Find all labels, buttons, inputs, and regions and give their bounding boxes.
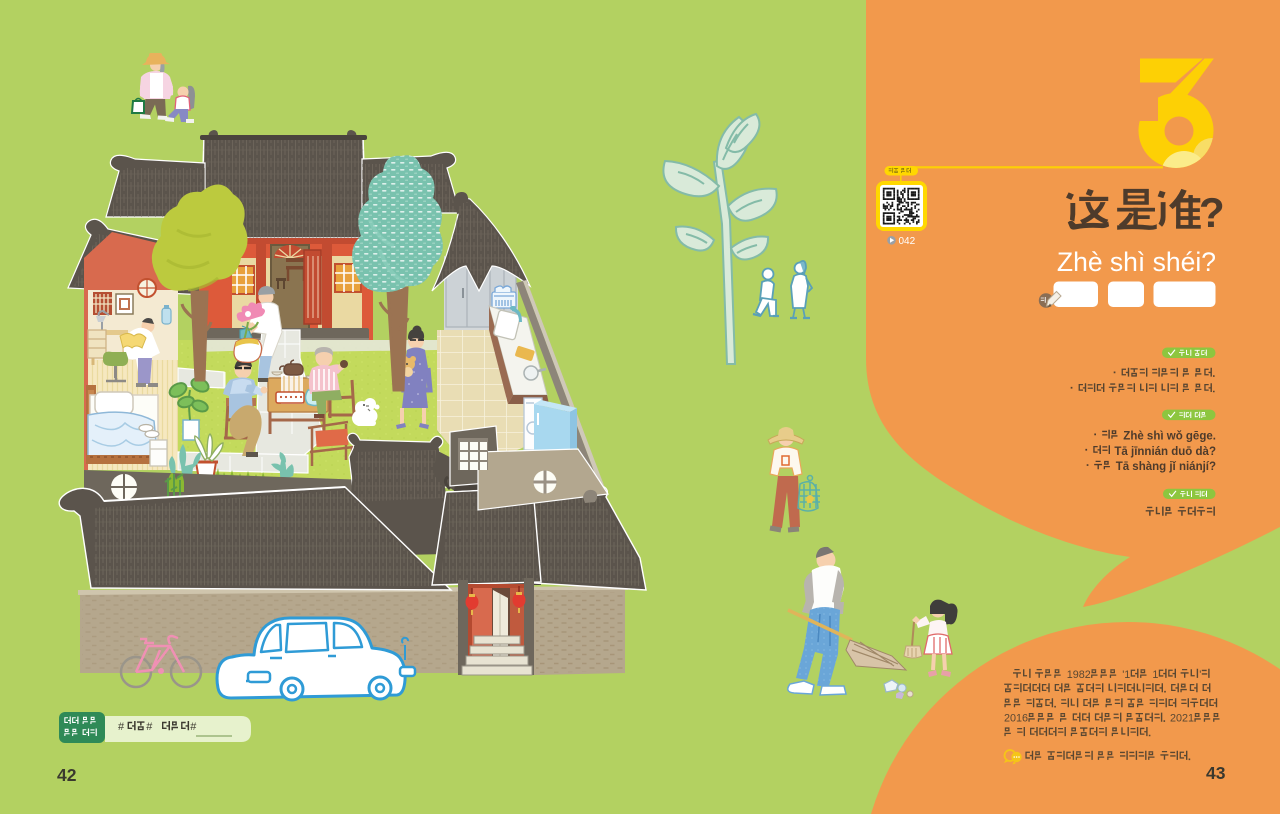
svg-text:42: 42 <box>57 765 77 785</box>
svg-text:#: # <box>190 721 197 733</box>
svg-text:2021: 2021 <box>1170 713 1194 725</box>
svg-text:Tā shàng jǐ niánjí?: Tā shàng jǐ niánjí? <box>1116 461 1216 473</box>
svg-text:#: # <box>146 721 153 733</box>
svg-text:#: # <box>118 721 125 733</box>
svg-text:Zhè shì wǒ gēge.: Zhè shì wǒ gēge. <box>1123 431 1216 443</box>
svg-text:2016: 2016 <box>1004 713 1028 725</box>
svg-text:1: 1 <box>1152 669 1158 681</box>
svg-text:Zhè shì shéi?: Zhè shì shéi? <box>1057 247 1216 277</box>
svg-text:43: 43 <box>1206 763 1226 783</box>
svg-text:1: 1 <box>1124 669 1130 681</box>
svg-text:?: ? <box>1199 189 1225 236</box>
svg-text:': ' <box>1199 669 1201 681</box>
svg-text:042: 042 <box>899 236 916 247</box>
svg-text:Tā jīnnián duō dà?: Tā jīnnián duō dà? <box>1114 446 1216 458</box>
svg-text:1982: 1982 <box>1067 669 1091 681</box>
